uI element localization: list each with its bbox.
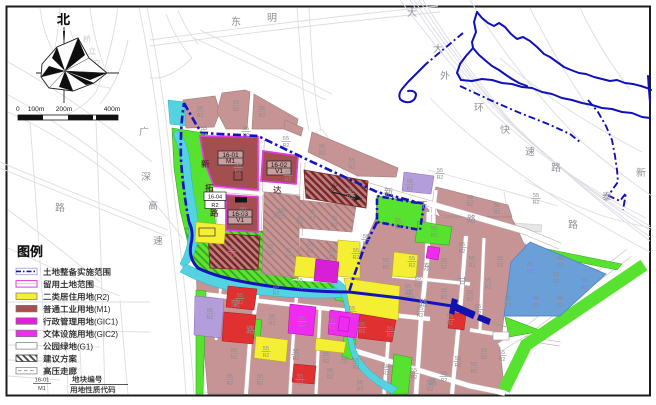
svg-text:R2: R2 [307, 249, 314, 255]
svg-text:R2: R2 [327, 375, 334, 381]
svg-text:400m: 400m [104, 106, 121, 113]
svg-text:R2: R2 [553, 279, 560, 285]
svg-text:R2: R2 [237, 300, 244, 306]
svg-text:R2: R2 [235, 169, 242, 175]
svg-text:55: 55 [533, 193, 539, 199]
svg-text:R2: R2 [309, 216, 316, 222]
svg-text:55: 55 [581, 278, 587, 284]
svg-text:R2: R2 [471, 369, 478, 375]
svg-text:R2: R2 [383, 371, 390, 377]
svg-text:R2: R2 [409, 263, 416, 269]
svg-text:16-04: 16-04 [208, 195, 222, 201]
svg-text:55: 55 [267, 244, 273, 250]
svg-text:55: 55 [329, 248, 335, 254]
svg-text:55: 55 [485, 278, 491, 284]
svg-text:R2: R2 [387, 333, 394, 339]
svg-text:R2: R2 [494, 210, 501, 216]
svg-text:R2: R2 [349, 313, 356, 319]
svg-text:55: 55 [273, 284, 279, 290]
svg-text:55: 55 [283, 136, 289, 142]
svg-text:55: 55 [411, 368, 417, 374]
svg-text:55: 55 [405, 284, 411, 290]
svg-text:R2: R2 [197, 113, 204, 119]
svg-text:0: 0 [16, 106, 20, 113]
svg-text:R2: R2 [497, 263, 504, 269]
svg-text:55: 55 [227, 374, 233, 380]
svg-text:R2: R2 [347, 195, 354, 201]
svg-text:R2: R2 [285, 255, 292, 261]
svg-text:55: 55 [197, 106, 203, 112]
svg-text:R2: R2 [427, 387, 434, 393]
svg-text:R2: R2 [431, 233, 438, 239]
svg-text:R2: R2 [533, 303, 540, 309]
svg-text:R2: R2 [415, 283, 422, 289]
svg-text:R2: R2 [411, 375, 418, 381]
svg-text:R2: R2 [441, 265, 448, 271]
svg-text:55: 55 [409, 256, 415, 262]
svg-text:R2: R2 [533, 200, 540, 206]
svg-text:R2: R2 [283, 143, 290, 149]
svg-text:55: 55 [285, 248, 291, 254]
svg-text:R2: R2 [227, 381, 234, 387]
svg-text:R2: R2 [505, 303, 512, 309]
svg-text:R2: R2 [299, 323, 306, 329]
svg-text:55: 55 [467, 290, 473, 296]
svg-text:55: 55 [263, 346, 269, 352]
svg-text:55: 55 [475, 304, 481, 310]
svg-text:55: 55 [243, 126, 249, 132]
svg-text:55: 55 [240, 207, 246, 213]
svg-text:R2: R2 [297, 381, 304, 387]
svg-text:55: 55 [441, 258, 447, 264]
svg-text:55: 55 [527, 262, 533, 268]
svg-text:55: 55 [229, 246, 235, 252]
svg-text:R2: R2 [353, 255, 360, 261]
svg-text:R2: R2 [459, 249, 466, 255]
svg-text:R2: R2 [257, 381, 264, 387]
svg-text:55: 55 [299, 316, 305, 322]
svg-text:R2: R2 [485, 285, 492, 291]
svg-text:R2: R2 [263, 353, 270, 359]
svg-text:55: 55 [235, 162, 241, 168]
svg-text:55: 55 [201, 126, 207, 132]
svg-text:(G1): (G1) [77, 342, 93, 351]
svg-text:55: 55 [349, 306, 355, 312]
svg-text:55: 55 [307, 242, 313, 248]
svg-text:55: 55 [231, 348, 237, 354]
svg-text:R2: R2 [293, 356, 300, 362]
svg-text:55: 55 [395, 218, 401, 224]
svg-text:R2: R2 [233, 107, 240, 113]
svg-text:(GIC1): (GIC1) [94, 318, 118, 327]
svg-text:55: 55 [499, 350, 505, 356]
svg-text:R2: R2 [297, 285, 304, 291]
svg-text:R2: R2 [229, 253, 236, 259]
svg-text:R2: R2 [437, 175, 444, 181]
svg-text:R2: R2 [329, 325, 336, 331]
svg-text:R2: R2 [441, 295, 448, 301]
svg-text:100m: 100m [28, 106, 45, 113]
svg-text:R2: R2 [499, 357, 506, 363]
svg-text:R2: R2 [405, 291, 412, 297]
svg-text:R2: R2 [467, 297, 474, 303]
svg-text:55: 55 [467, 195, 473, 201]
svg-text:55: 55 [349, 158, 355, 164]
svg-text:55: 55 [437, 168, 443, 174]
svg-text:V1: V1 [275, 168, 283, 175]
svg-text:R2: R2 [395, 225, 402, 231]
svg-text:R2: R2 [201, 133, 208, 139]
svg-text:55: 55 [415, 276, 421, 282]
svg-text:R2: R2 [323, 359, 330, 365]
svg-text:(M1): (M1) [94, 305, 111, 314]
svg-text:R2: R2 [469, 263, 476, 269]
svg-text:55: 55 [557, 296, 563, 302]
svg-text:55: 55 [327, 368, 333, 374]
svg-text:R2: R2 [447, 321, 454, 327]
svg-text:R2: R2 [285, 177, 292, 183]
svg-text:55: 55 [259, 106, 265, 112]
svg-text:55: 55 [459, 242, 465, 248]
svg-text:55: 55 [297, 374, 303, 380]
svg-text:55: 55 [353, 248, 359, 254]
svg-text:55: 55 [553, 272, 559, 278]
svg-text:55: 55 [331, 216, 337, 222]
svg-text:55: 55 [471, 362, 477, 368]
svg-text:R2: R2 [357, 387, 364, 393]
svg-text:55: 55 [293, 349, 299, 355]
svg-text:55: 55 [427, 380, 433, 386]
svg-text:M1: M1 [38, 386, 46, 392]
svg-text:55: 55 [383, 364, 389, 370]
svg-text:R2: R2 [211, 203, 218, 209]
svg-text:R2: R2 [383, 265, 390, 271]
svg-text:55: 55 [357, 380, 363, 386]
svg-text:R2: R2 [329, 255, 336, 261]
svg-text:55: 55 [269, 314, 275, 320]
svg-text:55: 55 [233, 100, 239, 106]
svg-text:55: 55 [329, 318, 335, 324]
svg-text:55: 55 [309, 209, 315, 215]
svg-text:55: 55 [505, 296, 511, 302]
svg-text:55: 55 [363, 234, 369, 240]
svg-text:R2: R2 [279, 215, 286, 221]
svg-text:55: 55 [323, 352, 329, 358]
svg-text:R2: R2 [581, 285, 588, 291]
svg-text:55: 55 [319, 144, 325, 150]
svg-text:(R2): (R2) [94, 293, 110, 302]
svg-text:R2: R2 [417, 313, 424, 319]
svg-text:55: 55 [383, 258, 389, 264]
svg-text:R2: R2 [407, 186, 414, 192]
svg-text:55: 55 [557, 256, 563, 262]
svg-text:55: 55 [494, 203, 500, 209]
svg-text:R2: R2 [527, 269, 534, 275]
svg-text:55: 55 [441, 288, 447, 294]
svg-text:55: 55 [207, 308, 213, 314]
svg-text:55: 55 [481, 348, 487, 354]
svg-text:R2: R2 [441, 378, 448, 384]
svg-text:R2: R2 [481, 355, 488, 361]
svg-text:R2: R2 [243, 133, 250, 139]
svg-text:R2: R2 [353, 365, 360, 371]
svg-text:55: 55 [417, 306, 423, 312]
svg-text:55: 55 [257, 374, 263, 380]
svg-text:55: 55 [237, 293, 243, 299]
svg-text:55: 55 [353, 358, 359, 364]
svg-text:55: 55 [279, 208, 285, 214]
svg-text:55: 55 [455, 356, 461, 362]
svg-text:55: 55 [297, 278, 303, 284]
svg-text:R2: R2 [207, 315, 214, 321]
svg-text:R2: R2 [231, 355, 238, 361]
svg-text:R2: R2 [475, 311, 482, 317]
svg-text:55: 55 [533, 296, 539, 302]
svg-text:55: 55 [497, 256, 503, 262]
svg-text:55: 55 [431, 226, 437, 232]
svg-text:55: 55 [407, 179, 413, 185]
svg-text:R2: R2 [269, 321, 276, 327]
svg-text:55: 55 [447, 314, 453, 320]
svg-text:(GIC2): (GIC2) [94, 330, 118, 339]
svg-text:R2: R2 [557, 303, 564, 309]
svg-text:55: 55 [285, 170, 291, 176]
svg-text:55: 55 [387, 326, 393, 332]
svg-text:16-01: 16-01 [35, 378, 50, 384]
svg-text:R2: R2 [273, 291, 280, 297]
svg-text:R2: R2 [319, 151, 326, 157]
svg-text:55: 55 [469, 256, 475, 262]
svg-text:200m: 200m [56, 106, 73, 113]
svg-text:R2: R2 [259, 113, 266, 119]
svg-text:R2: R2 [240, 214, 247, 220]
svg-text:R2: R2 [557, 263, 564, 269]
svg-text:R2: R2 [359, 329, 366, 335]
svg-text:R2: R2 [349, 165, 356, 171]
svg-text:R2: R2 [467, 202, 474, 208]
svg-text:R2: R2 [363, 241, 370, 247]
svg-text:R2: R2 [455, 363, 462, 369]
svg-text:55: 55 [347, 188, 353, 194]
svg-text:R2: R2 [267, 251, 274, 257]
svg-text:55: 55 [359, 322, 365, 328]
svg-text:R2: R2 [331, 223, 338, 229]
svg-text:55: 55 [441, 371, 447, 377]
